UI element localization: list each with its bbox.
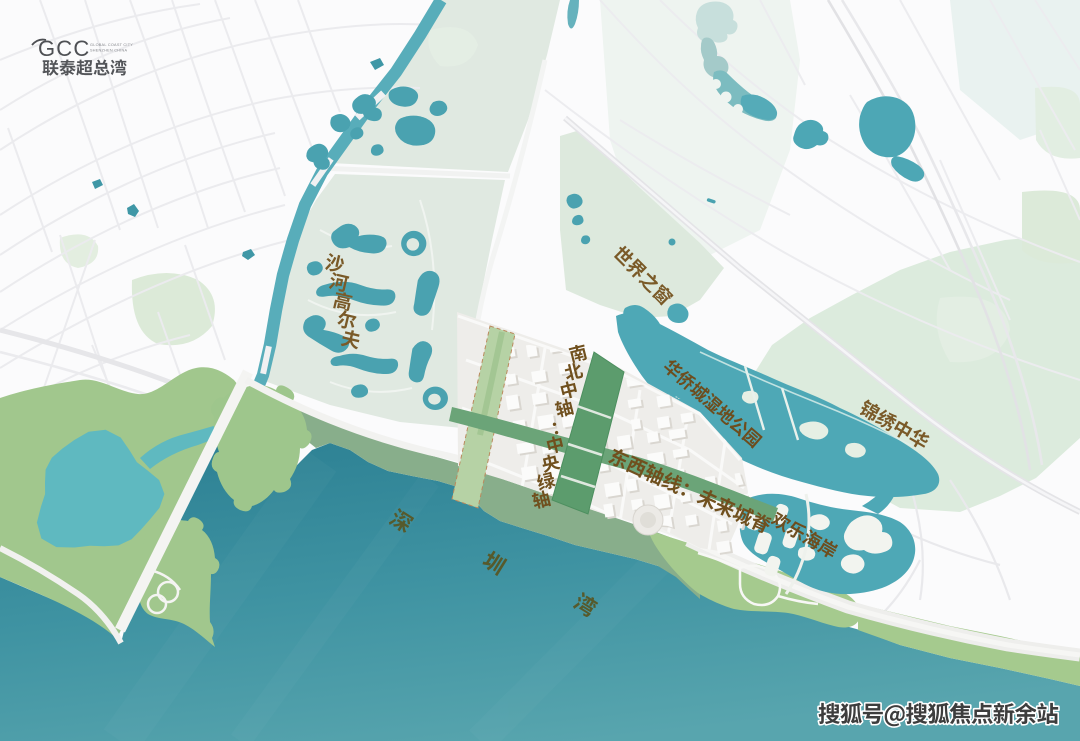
svg-text:GLOBAL COAST CITY: GLOBAL COAST CITY xyxy=(90,43,133,47)
svg-text:SHENZHEN CHINA: SHENZHEN CHINA xyxy=(90,49,127,53)
